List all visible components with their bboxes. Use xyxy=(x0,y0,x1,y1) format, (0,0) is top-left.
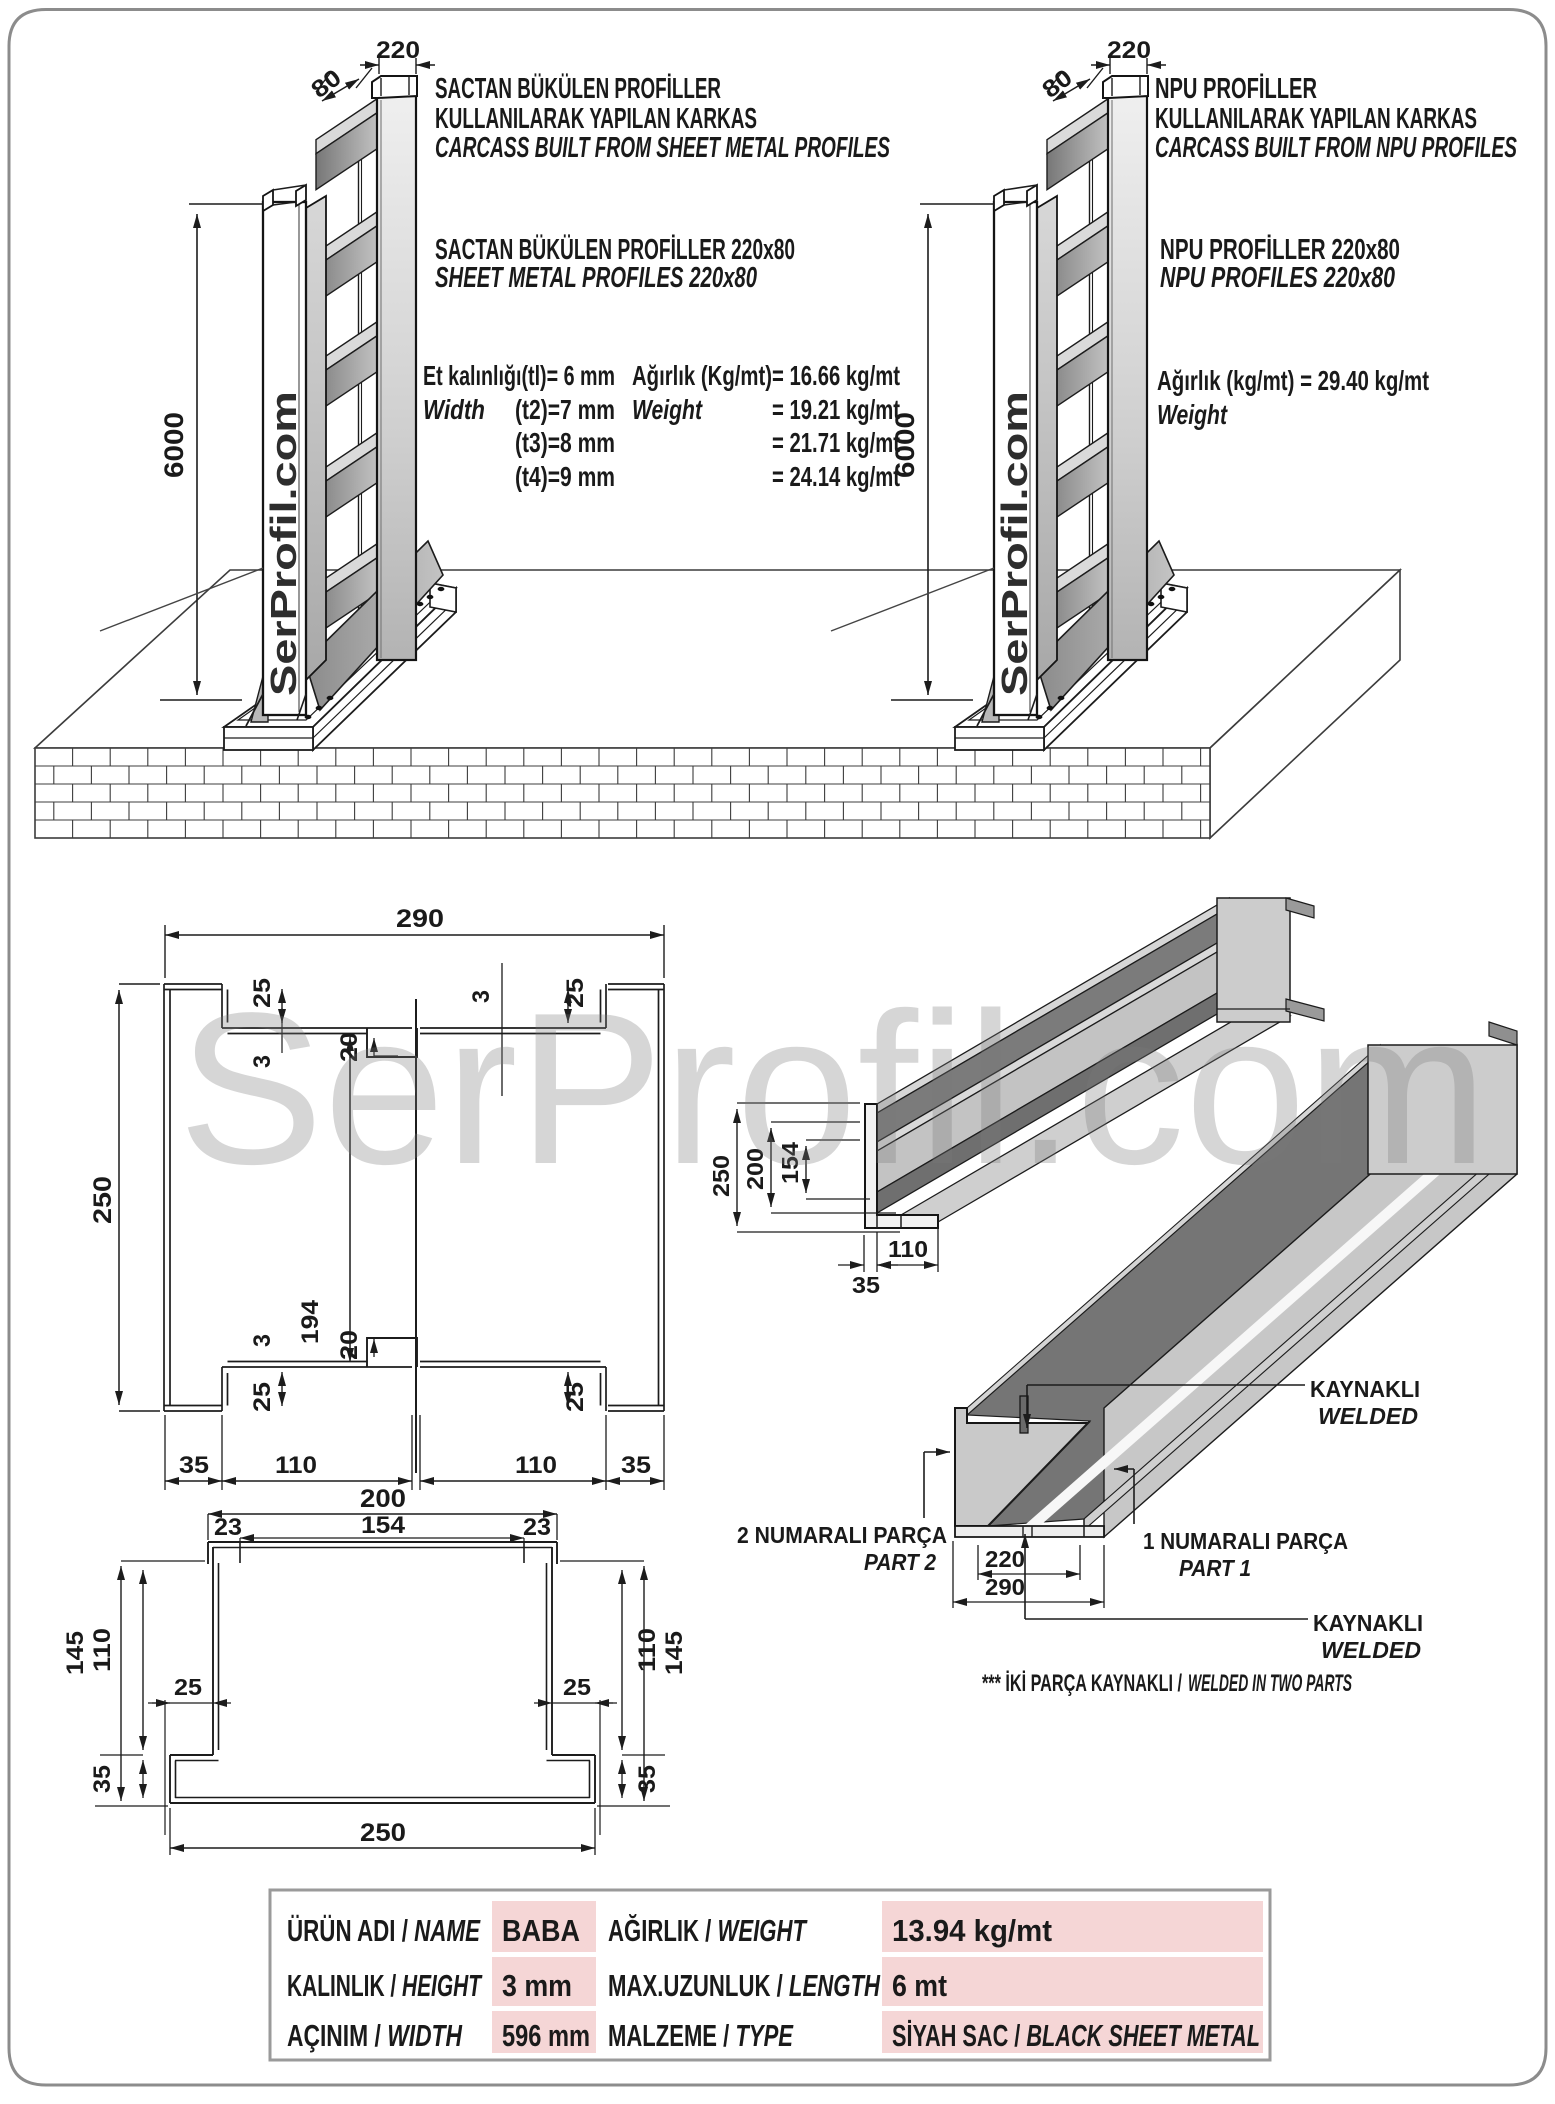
svg-text:PART 2: PART 2 xyxy=(864,1549,936,1575)
svg-text:35: 35 xyxy=(179,1452,209,1479)
svg-text:SerProfil.com: SerProfil.com xyxy=(994,391,1035,696)
svg-text:6 mt: 6 mt xyxy=(892,1968,947,2003)
svg-text:SHEET METAL PROFILES 220x80: SHEET METAL PROFILES 220x80 xyxy=(435,262,757,294)
svg-text:20: 20 xyxy=(336,1330,363,1360)
svg-text:KAYNAKLI: KAYNAKLI xyxy=(1310,1376,1420,1402)
svg-text:1 NUMARALI PARÇA: 1 NUMARALI PARÇA xyxy=(1143,1528,1348,1554)
svg-text:AĞIRLIK / WEIGHT: AĞIRLIK / WEIGHT xyxy=(608,1913,808,1948)
svg-text:25: 25 xyxy=(562,1382,589,1412)
svg-text:Weight: Weight xyxy=(1157,399,1228,430)
svg-text:194: 194 xyxy=(297,1299,324,1344)
svg-text:SerProfil.com: SerProfil.com xyxy=(263,391,304,696)
svg-text:Et kalınlığı(tl)= 6 mm: Et kalınlığı(tl)= 6 mm xyxy=(423,360,615,391)
svg-text:3 mm: 3 mm xyxy=(502,1968,572,2003)
svg-text:35: 35 xyxy=(89,1765,116,1793)
svg-text:110: 110 xyxy=(888,1236,928,1262)
svg-text:Ağırlık (Kg/mt): Ağırlık (Kg/mt) xyxy=(632,360,772,391)
svg-text:ÜRÜN ADI / NAME: ÜRÜN ADI / NAME xyxy=(287,1913,481,1948)
svg-text:110: 110 xyxy=(275,1452,317,1479)
svg-text:Weight: Weight xyxy=(632,394,703,425)
svg-text:250: 250 xyxy=(360,1819,406,1847)
svg-text:6000: 6000 xyxy=(159,412,189,478)
svg-text:MALZEME / TYPE: MALZEME / TYPE xyxy=(608,2018,794,2053)
svg-text:220: 220 xyxy=(376,37,420,64)
svg-text:KAYNAKLI: KAYNAKLI xyxy=(1313,1610,1423,1636)
svg-text:25: 25 xyxy=(249,1382,276,1412)
svg-text:220: 220 xyxy=(985,1546,1025,1572)
svg-text:NPU PROFILES 220x80: NPU PROFILES 220x80 xyxy=(1160,262,1395,294)
svg-text:220: 220 xyxy=(1107,37,1151,64)
svg-text:KALINLIK / HEIGHT: KALINLIK / HEIGHT xyxy=(287,1968,483,2003)
svg-text:= 24.14 kg/mt: = 24.14 kg/mt xyxy=(772,461,900,492)
svg-text:WELDED IN TWO PARTS: WELDED IN TWO PARTS xyxy=(1188,1670,1352,1697)
svg-text:(t3)=8 mm: (t3)=8 mm xyxy=(515,427,615,458)
svg-text:110: 110 xyxy=(515,1452,557,1479)
svg-text:154: 154 xyxy=(361,1512,406,1539)
svg-text:35: 35 xyxy=(634,1765,661,1793)
svg-text:BABA: BABA xyxy=(502,1913,580,1948)
svg-text:WELDED: WELDED xyxy=(1321,1637,1421,1663)
svg-text:AÇINIM / WIDTH: AÇINIM / WIDTH xyxy=(287,2018,462,2053)
svg-text:110: 110 xyxy=(89,1628,116,1672)
svg-text:2 NUMARALI PARÇA: 2 NUMARALI PARÇA xyxy=(737,1522,947,1548)
svg-text:*** İKİ PARÇA KAYNAKLI /: *** İKİ PARÇA KAYNAKLI / xyxy=(982,1670,1182,1697)
svg-text:WELDED: WELDED xyxy=(1318,1403,1418,1429)
svg-text:SİYAH SAC / BLACK SHEET METAL: SİYAH SAC / BLACK SHEET METAL xyxy=(892,2018,1260,2053)
svg-text:250: 250 xyxy=(89,1176,117,1224)
svg-text:200: 200 xyxy=(360,1485,406,1513)
svg-text:145: 145 xyxy=(661,1631,688,1675)
svg-text:145: 145 xyxy=(62,1631,89,1675)
svg-text:3: 3 xyxy=(249,1334,276,1347)
svg-text:23: 23 xyxy=(214,1514,242,1541)
svg-text:SACTAN BÜKÜLEN PROFİLLER: SACTAN BÜKÜLEN PROFİLLER xyxy=(435,72,721,105)
svg-text:MAX.UZUNLUK / LENGTH: MAX.UZUNLUK / LENGTH xyxy=(608,1968,880,2003)
svg-text:290: 290 xyxy=(396,905,444,933)
svg-text:290: 290 xyxy=(985,1574,1025,1600)
svg-text:CARCASS BUILT FROM SHEET METAL: CARCASS BUILT FROM SHEET METAL PROFILES xyxy=(435,132,890,164)
svg-text:PART 1: PART 1 xyxy=(1179,1555,1251,1581)
svg-text:25: 25 xyxy=(174,1674,202,1700)
svg-text:(t4)=9 mm: (t4)=9 mm xyxy=(515,461,615,492)
svg-text:NPU PROFİLLER: NPU PROFİLLER xyxy=(1155,73,1317,105)
svg-text:23: 23 xyxy=(523,1514,551,1541)
svg-text:Width: Width xyxy=(423,394,485,425)
svg-text:SerProfil.com: SerProfil.com xyxy=(178,967,1488,1209)
svg-text:13.94 kg/mt: 13.94 kg/mt xyxy=(892,1913,1052,1948)
svg-text:= 16.66 kg/mt: = 16.66 kg/mt xyxy=(772,360,900,391)
svg-text:25: 25 xyxy=(563,1674,591,1700)
svg-text:= 19.21 kg/mt: = 19.21 kg/mt xyxy=(772,394,900,425)
svg-text:KULLANILARAK YAPILAN KARKAS: KULLANILARAK YAPILAN KARKAS xyxy=(435,103,757,135)
svg-text:CARCASS BUILT FROM NPU PROFILE: CARCASS BUILT FROM NPU PROFILES xyxy=(1155,132,1517,164)
svg-text:KULLANILARAK YAPILAN KARKAS: KULLANILARAK YAPILAN KARKAS xyxy=(1155,103,1477,135)
svg-text:35: 35 xyxy=(852,1272,880,1298)
svg-text:35: 35 xyxy=(621,1452,651,1479)
svg-text:Ağırlık (kg/mt) = 29.40 kg/mt: Ağırlık (kg/mt) = 29.40 kg/mt xyxy=(1157,365,1429,396)
svg-text:110: 110 xyxy=(634,1628,661,1672)
svg-text:= 21.71 kg/mt: = 21.71 kg/mt xyxy=(772,427,900,458)
svg-text:596 mm: 596 mm xyxy=(502,2018,590,2053)
svg-text:(t2)=7 mm: (t2)=7 mm xyxy=(515,394,615,425)
